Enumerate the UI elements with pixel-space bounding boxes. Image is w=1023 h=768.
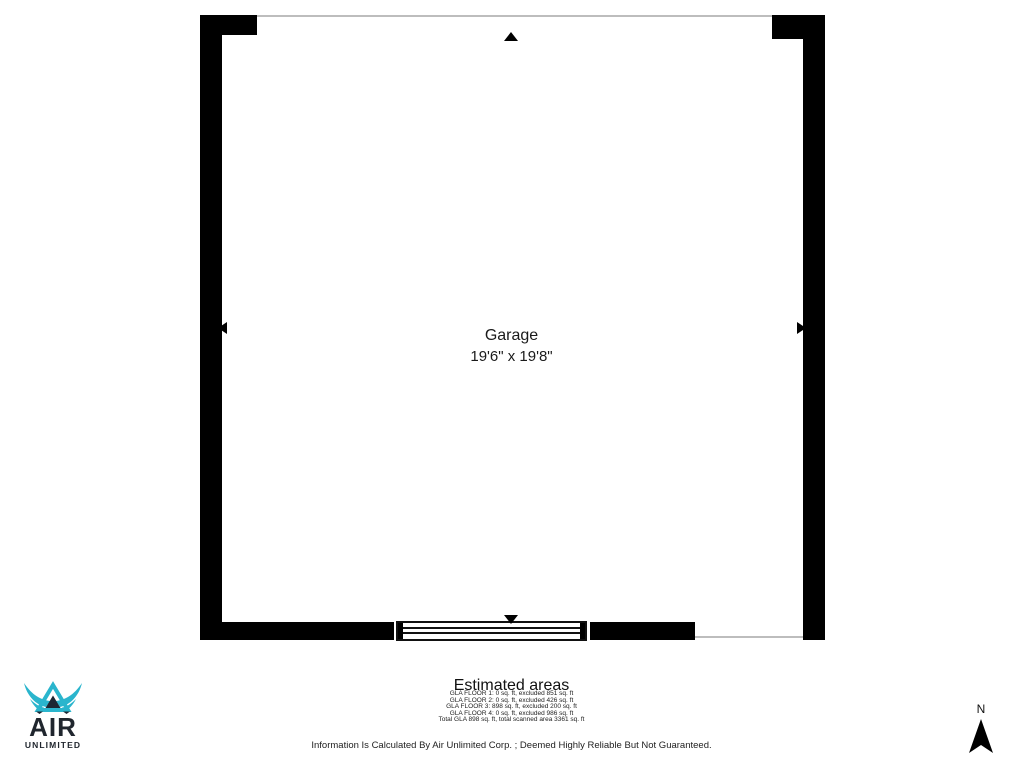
wall-stub-top-left <box>200 15 257 35</box>
north-arrow-icon <box>967 718 995 754</box>
wall-stub-top-right <box>772 15 825 39</box>
floorplan-page: Garage 19'6" x 19'8" Estimated areas GLA… <box>0 0 1023 768</box>
garage-door-panel-line <box>398 627 585 629</box>
gla-line: Total GLA 898 sq. ft, total scanned area… <box>0 717 1023 724</box>
compass-north-label: N <box>958 702 1004 716</box>
opening-line-top <box>257 15 772 17</box>
wall-bottom-mid-segment <box>590 622 695 640</box>
compass: N <box>958 702 1004 754</box>
wall-bottom-left-segment <box>200 622 394 640</box>
air-unlimited-logo-icon <box>23 680 83 714</box>
gla-summary: GLA FLOOR 1: 0 sq. ft, excluded 851 sq. … <box>0 691 1023 724</box>
disclaimer-text: Information Is Calculated By Air Unlimit… <box>0 740 1023 751</box>
garage-door-panel-line <box>398 632 585 634</box>
opening-line-bottom-right <box>695 636 803 638</box>
garage-door-jamb-right <box>580 623 585 639</box>
air-unlimited-logo: AIR UNLIMITED <box>22 680 84 750</box>
garage-door-jamb-left <box>398 623 403 639</box>
logo-text-air: AIR <box>22 714 84 740</box>
room-dimensions-label: 19'6" x 19'8" <box>0 348 1023 365</box>
north-wall-marker-icon <box>504 32 518 41</box>
room-name-label: Garage <box>0 327 1023 345</box>
logo-text-unlimited: UNLIMITED <box>22 740 84 750</box>
garage-door <box>396 621 587 641</box>
south-wall-marker-icon <box>504 615 518 624</box>
